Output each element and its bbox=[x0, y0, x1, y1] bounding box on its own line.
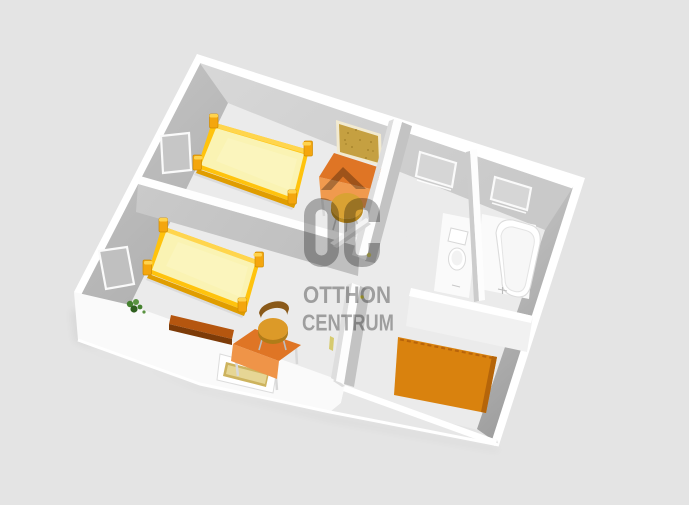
svg-text:CENTRUM: CENTRUM bbox=[302, 310, 394, 336]
svg-text:OTTHON: OTTHON bbox=[303, 282, 391, 309]
